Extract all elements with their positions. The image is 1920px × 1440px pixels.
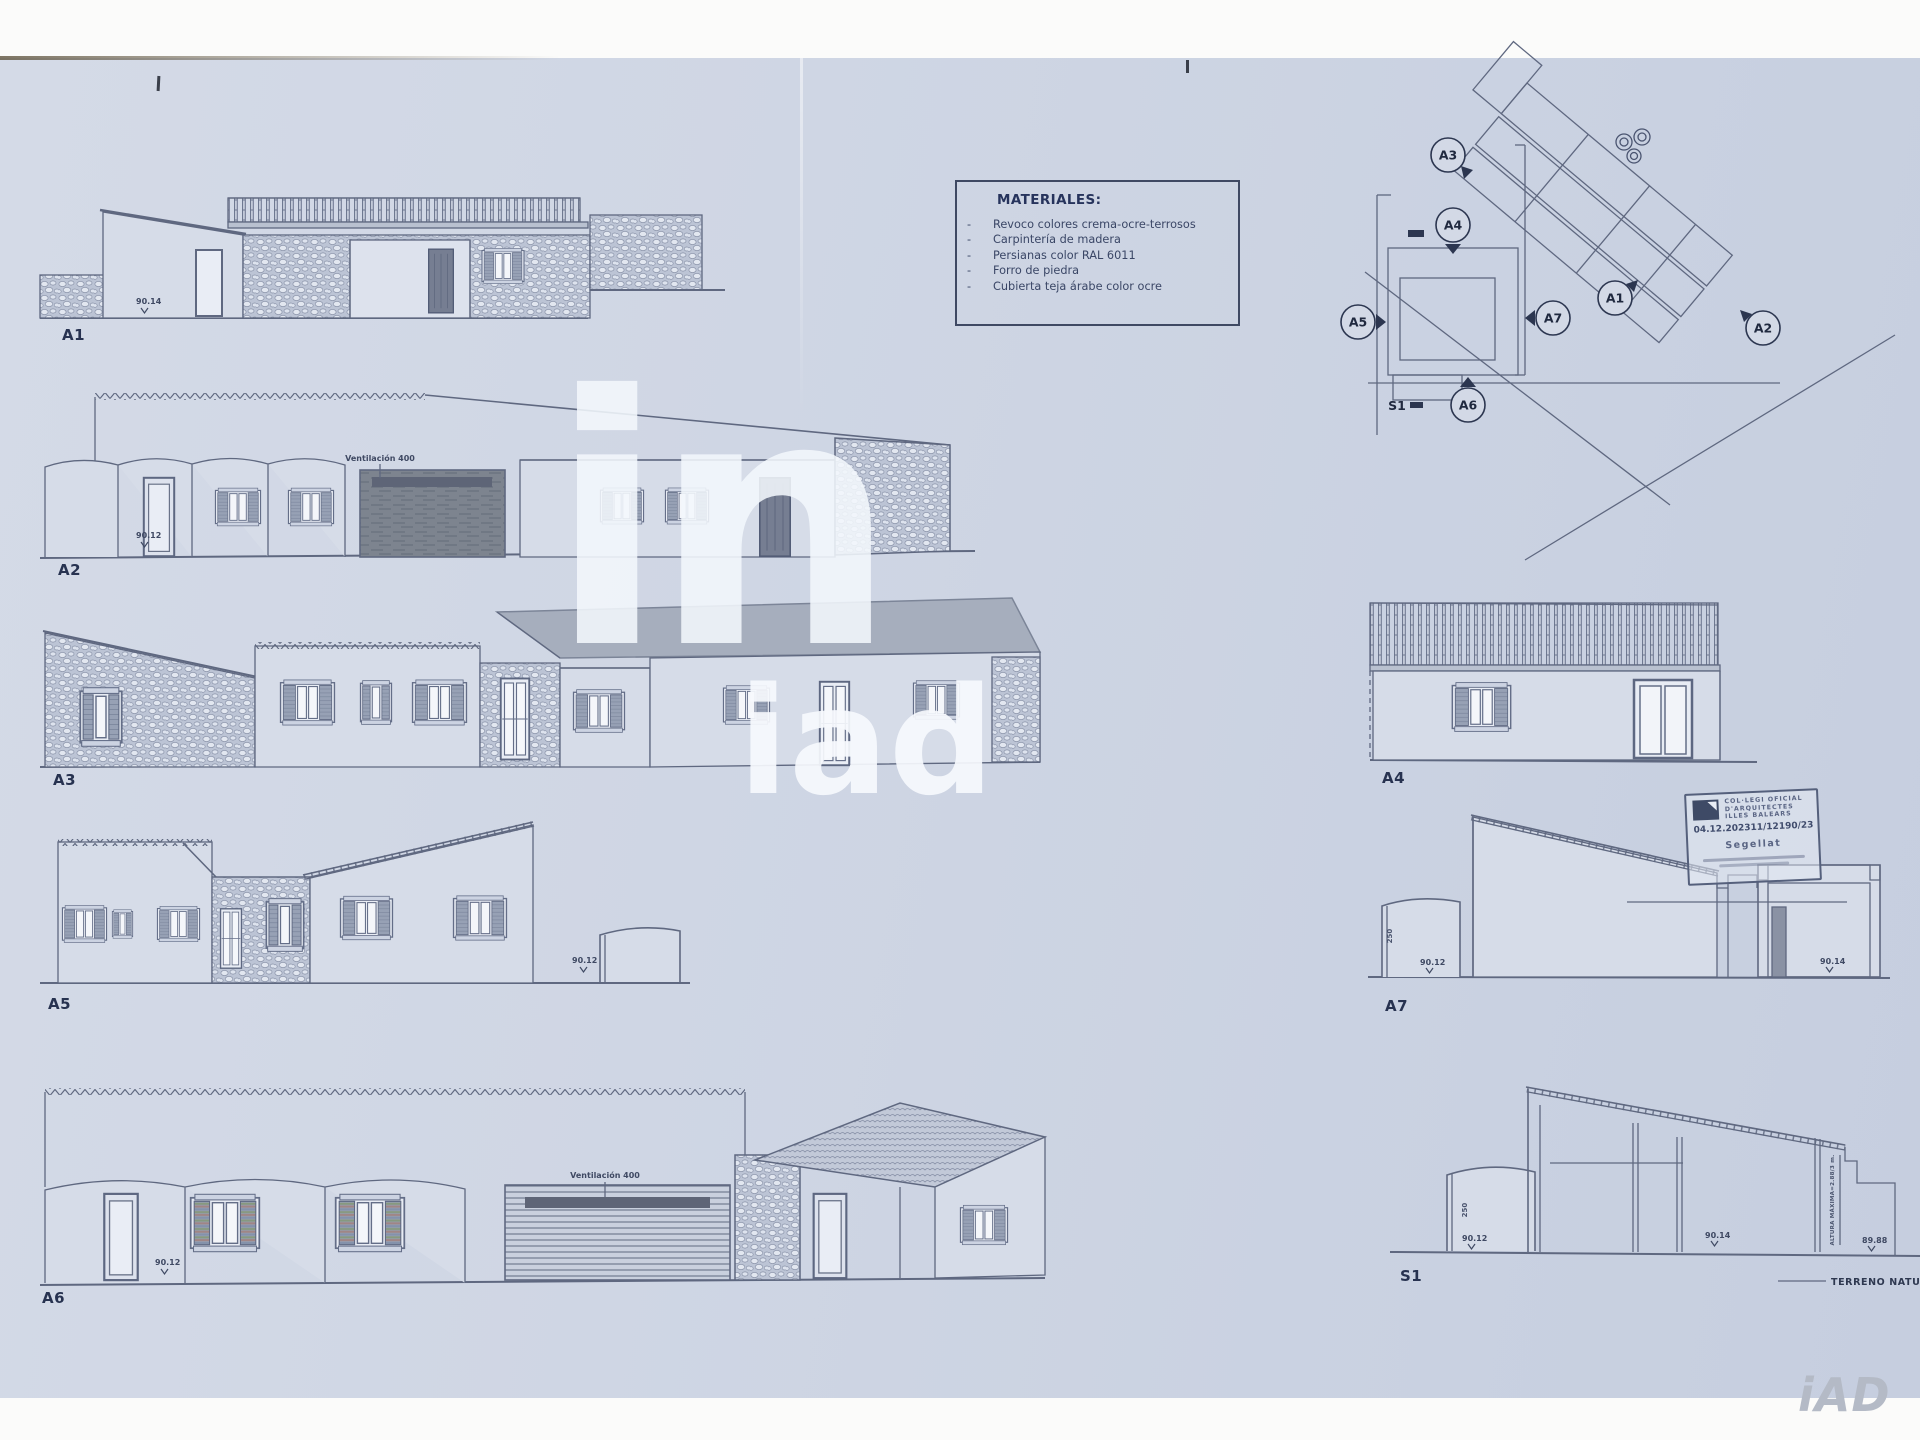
siteplan-marker-a2: A2 <box>1740 310 1780 345</box>
siteplan-marker-a3: A3 <box>1431 138 1473 179</box>
elevation-a7-label: A7 <box>1385 997 1408 1015</box>
elevation-a2-drawing: Ventilación 400 90.12 A2 <box>40 385 990 580</box>
elevation-a3-drawing: A3 <box>40 595 1050 795</box>
benchmark-arrow-icon <box>580 967 587 972</box>
marker-arrow-icon <box>1461 166 1473 179</box>
svg-text:A7: A7 <box>1544 311 1562 326</box>
svg-text:A4: A4 <box>1444 218 1463 233</box>
bullet-dash-icon: - <box>965 279 993 294</box>
terrain-label: TERRENO NATURAL <box>1831 1277 1920 1288</box>
bullet-dash-icon: - <box>965 248 993 263</box>
site-plan-markers: A3 A4 A5 A7 A1 <box>1341 138 1780 422</box>
materials-item-text: Revoco colores crema-ocre-terrosos <box>993 217 1196 232</box>
a1-benchmark-dim: 90.14 <box>136 297 162 306</box>
materials-item: - Persianas color RAL 6011 <box>965 248 1230 263</box>
s1-benchmark-dim-mid: 90.14 <box>1705 1231 1731 1240</box>
s1-max-height-note: ALTURA MÁXIMA=2.88/3 m. <box>1829 1154 1836 1245</box>
materials-title: MATERIALES: <box>997 192 1230 208</box>
a2-vent-note: Ventilación 400 <box>345 453 415 463</box>
svg-text:S1: S1 <box>1388 398 1406 413</box>
materials-item: - Cubierta teja árabe color ocre <box>965 279 1230 294</box>
architect-stamp: COL·LEGI OFICIAL D'ARQUITECTES ILLES BAL… <box>1684 788 1822 886</box>
stamp-number: 11/12190/23 <box>1750 820 1813 833</box>
benchmark-arrow-icon <box>1868 1246 1875 1251</box>
materials-item-text: Persianas color RAL 6011 <box>993 248 1136 263</box>
elevation-a6-drawing: Ventilación 400 90.12 A6 <box>30 1075 1100 1310</box>
materials-item: - Revoco colores crema-ocre-terrosos <box>965 217 1230 232</box>
elevation-a4-drawing: A4 <box>1368 585 1913 790</box>
a7-benchmark-dim-left: 90.12 <box>1420 958 1445 967</box>
site-plan-key: A3 A4 A5 A7 A1 <box>1290 58 1920 578</box>
elevation-a1-label: A1 <box>62 326 85 344</box>
bullet-dash-icon: - <box>965 217 993 232</box>
siteplan-marker-a7: A7 <box>1525 301 1570 335</box>
a7-benchmark-dim-right: 90.14 <box>1820 957 1846 966</box>
svg-text:A5: A5 <box>1349 315 1367 330</box>
paper-crease <box>800 58 803 418</box>
section-s1-drawing: 250 90.12 90.14 89.88 ALTURA MÁXIMA=2.88… <box>1390 1075 1920 1310</box>
materials-item-text: Carpintería de madera <box>993 232 1121 247</box>
a5-benchmark-dim: 90.12 <box>572 956 597 965</box>
elevation-a5-label: A5 <box>48 995 71 1013</box>
stamp-status: Segellat <box>1688 836 1818 853</box>
svg-text:A2: A2 <box>1754 321 1772 336</box>
svg-text:A6: A6 <box>1459 398 1478 413</box>
registration-mark <box>1186 60 1189 73</box>
site-plan-main-building <box>1425 42 1747 343</box>
materials-item-text: Forro de piedra <box>993 263 1079 278</box>
elevation-a2-label: A2 <box>58 561 81 579</box>
bullet-dash-icon: - <box>965 232 993 247</box>
s1-height-dim: 250 <box>1461 1203 1469 1218</box>
iad-brand-logo: iAD <box>1798 1368 1891 1422</box>
a6-vent-note: Ventilación 400 <box>570 1170 640 1180</box>
materials-item: - Forro de piedra <box>965 263 1230 278</box>
marker-arrow-icon <box>1376 314 1386 330</box>
svg-text:A1: A1 <box>1606 291 1624 306</box>
materials-legend: MATERIALES: - Revoco colores crema-ocre-… <box>955 180 1240 326</box>
siteplan-marker-a5: A5 <box>1341 305 1386 339</box>
siteplan-marker-a1: A1 <box>1598 280 1638 315</box>
paper-top-edge <box>0 56 560 60</box>
elevation-a3-label: A3 <box>53 771 76 789</box>
siteplan-marker-a4: A4 <box>1436 208 1470 254</box>
svg-text:A3: A3 <box>1439 148 1457 163</box>
stamp-fine-print <box>1719 861 1789 867</box>
elevation-a6-label: A6 <box>42 1289 65 1307</box>
site-plan-tree-symbols <box>1616 129 1650 163</box>
benchmark-arrow-icon <box>1711 1241 1718 1246</box>
elevation-a7-drawing: 250 90.12 90.14 A7 <box>1368 808 1913 1023</box>
materials-item: - Carpintería de madera <box>965 232 1230 247</box>
a7-height-dim: 250 <box>1386 929 1394 944</box>
elevation-a1-drawing: 90.14 A1 <box>40 140 730 352</box>
elevation-a5-drawing: 90.12 A5 <box>40 815 700 1015</box>
a2-benchmark-dim: 90.12 <box>136 531 161 540</box>
site-plan-secondary-building <box>1388 248 1518 400</box>
a6-benchmark-dim: 90.12 <box>155 1258 180 1267</box>
s1-benchmark-dim-right: 89.88 <box>1862 1236 1888 1245</box>
s1-benchmark-dim-left: 90.12 <box>1462 1234 1487 1243</box>
siteplan-marker-a6: A6 <box>1451 377 1485 422</box>
section-s1-label: S1 <box>1400 1267 1422 1285</box>
marker-arrow-icon <box>1525 310 1535 326</box>
stamp-date: 04.12.2023 <box>1693 823 1750 835</box>
stamp-logo-icon <box>1692 799 1719 820</box>
elevation-a4-label: A4 <box>1382 769 1405 787</box>
bullet-dash-icon: - <box>965 263 993 278</box>
marker-arrow-icon <box>1445 244 1461 254</box>
stamp-fine-print <box>1703 855 1805 862</box>
scanned-blueprint-page: 90.14 A1 MATERIALES: - Revoco colores cr… <box>0 0 1920 1440</box>
materials-item-text: Cubierta teja árabe color ocre <box>993 279 1162 294</box>
